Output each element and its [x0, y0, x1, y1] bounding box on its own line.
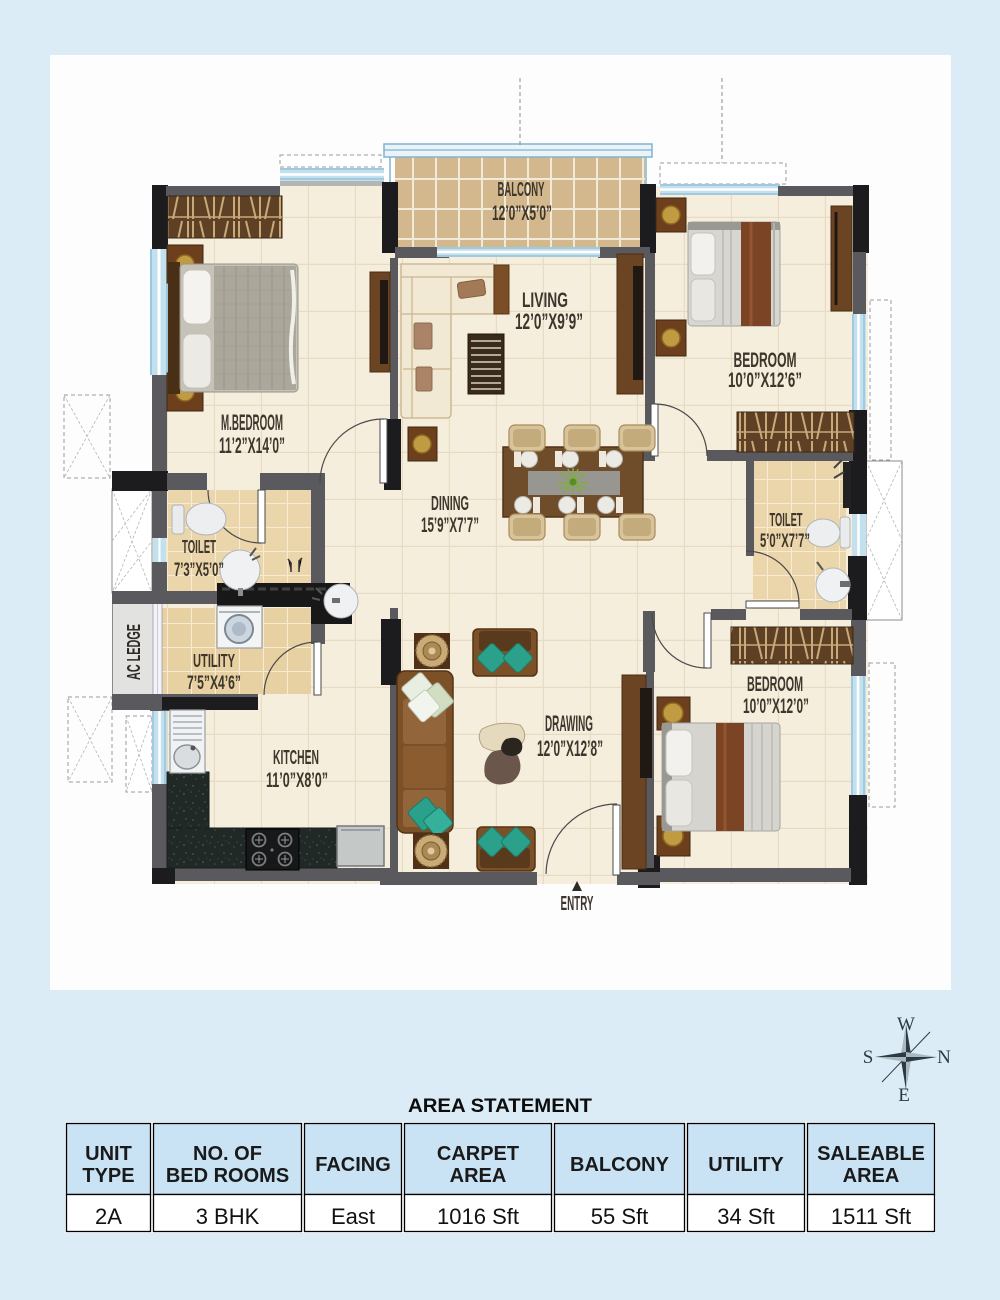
svg-text:7’5”X4’6”: 7’5”X4’6” [187, 673, 241, 694]
svg-text:AREA: AREA [843, 1165, 900, 1187]
svg-text:11’0”X8’0”: 11’0”X8’0” [266, 769, 328, 792]
svg-text:TOILET: TOILET [770, 510, 803, 530]
svg-text:TOILET: TOILET [182, 537, 216, 557]
svg-text:12’0”X12’8”: 12’0”X12’8” [537, 736, 603, 761]
svg-text:S: S [863, 1047, 874, 1068]
svg-text:10’0”X12’0”: 10’0”X12’0” [743, 695, 809, 718]
svg-text:2A: 2A [95, 1204, 122, 1229]
svg-text:DINING: DINING [431, 493, 469, 515]
svg-text:BED ROOMS: BED ROOMS [166, 1165, 289, 1187]
svg-text:ENTRY: ENTRY [561, 893, 594, 915]
svg-text:BEDROOM: BEDROOM [747, 673, 803, 696]
svg-text:KITCHEN: KITCHEN [273, 747, 319, 769]
svg-text:7’3”X5’0”: 7’3”X5’0” [174, 560, 224, 581]
svg-text:UTILITY: UTILITY [193, 651, 235, 671]
svg-text:TYPE: TYPE [82, 1165, 134, 1187]
svg-text:DRAWING: DRAWING [545, 711, 593, 736]
svg-text:CARPET: CARPET [437, 1143, 519, 1165]
svg-text:N: N [937, 1047, 951, 1068]
svg-text:East: East [331, 1204, 375, 1229]
svg-text:12’0”X5’0”: 12’0”X5’0” [492, 202, 552, 225]
svg-text:BALCONY: BALCONY [570, 1154, 670, 1176]
svg-text:UNIT: UNIT [85, 1143, 132, 1165]
svg-text:34 Sft: 34 Sft [717, 1204, 774, 1229]
svg-text:BALCONY: BALCONY [498, 179, 545, 201]
svg-text:15’9”X7’7”: 15’9”X7’7” [421, 514, 479, 537]
svg-text:AREA: AREA [450, 1165, 507, 1187]
svg-text:M.BEDROOM: M.BEDROOM [221, 410, 283, 435]
svg-text:W: W [897, 1014, 915, 1035]
svg-text:E: E [898, 1085, 910, 1106]
svg-text:1511 Sft: 1511 Sft [831, 1204, 911, 1229]
svg-text:10’0”X12’6”: 10’0”X12’6” [728, 369, 802, 392]
svg-text:AREA STATEMENT: AREA STATEMENT [408, 1096, 592, 1117]
svg-text:5’0”X7’7”: 5’0”X7’7” [760, 531, 810, 552]
svg-text:NO. OF: NO. OF [193, 1143, 262, 1165]
svg-text:UTILITY: UTILITY [708, 1154, 784, 1176]
svg-text:AC LEDGE: AC LEDGE [124, 624, 144, 680]
svg-text:1016 Sft: 1016 Sft [437, 1204, 519, 1229]
svg-text:SALEABLE: SALEABLE [817, 1143, 925, 1165]
svg-text:FACING: FACING [315, 1154, 391, 1176]
svg-text:11’2”X14’0”: 11’2”X14’0” [219, 433, 285, 458]
svg-text:12’0”X9’9”: 12’0”X9’9” [515, 309, 583, 334]
svg-text:55 Sft: 55 Sft [591, 1204, 648, 1229]
svg-text:3 BHK: 3 BHK [196, 1204, 260, 1229]
